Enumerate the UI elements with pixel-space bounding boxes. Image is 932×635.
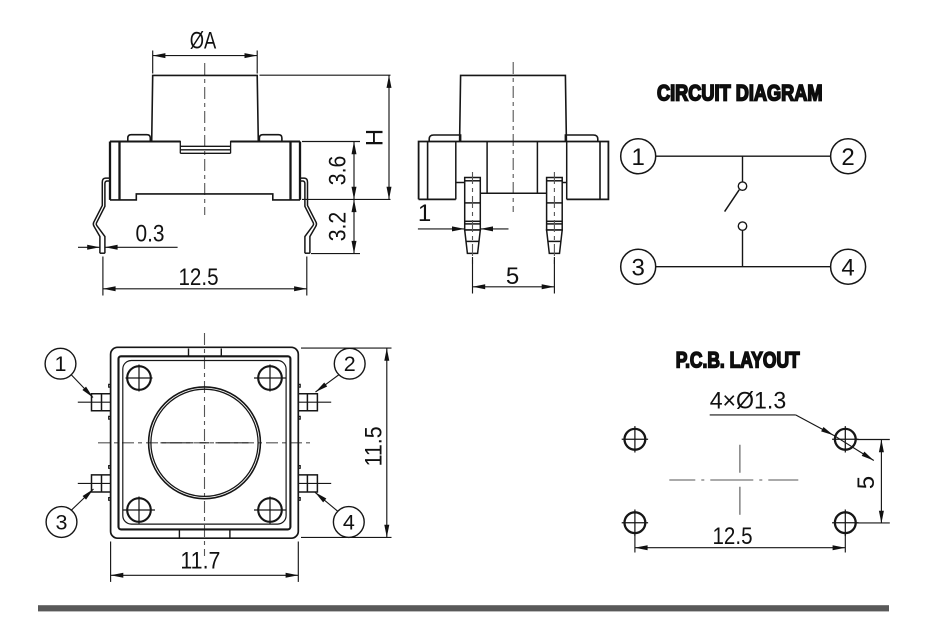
svg-text:4: 4 (343, 511, 355, 535)
svg-text:1: 1 (632, 144, 645, 171)
svg-text:11.7: 11.7 (180, 548, 220, 575)
svg-text:1: 1 (55, 352, 67, 376)
svg-text:ØA: ØA (190, 27, 217, 54)
svg-text:1: 1 (418, 200, 431, 227)
svg-text:3: 3 (632, 254, 645, 281)
svg-text:5: 5 (506, 263, 519, 290)
svg-text:2: 2 (344, 352, 356, 376)
svg-text:11.5: 11.5 (361, 426, 388, 466)
svg-text:4×Ø1.3: 4×Ø1.3 (710, 388, 787, 415)
svg-text:2: 2 (841, 144, 854, 171)
svg-text:3.2: 3.2 (325, 212, 352, 242)
svg-text:12.5: 12.5 (713, 523, 753, 550)
svg-text:H: H (361, 129, 388, 146)
svg-text:3.6: 3.6 (325, 156, 352, 186)
svg-text:CIRCUIT DIAGRAM: CIRCUIT DIAGRAM (657, 81, 823, 106)
svg-text:P.C.B. LAYOUT: P.C.B. LAYOUT (676, 347, 800, 372)
svg-text:4: 4 (841, 254, 854, 281)
svg-text:0.3: 0.3 (136, 221, 165, 248)
svg-text:3: 3 (56, 511, 68, 535)
svg-text:5: 5 (853, 476, 880, 489)
svg-text:12.5: 12.5 (179, 264, 219, 291)
